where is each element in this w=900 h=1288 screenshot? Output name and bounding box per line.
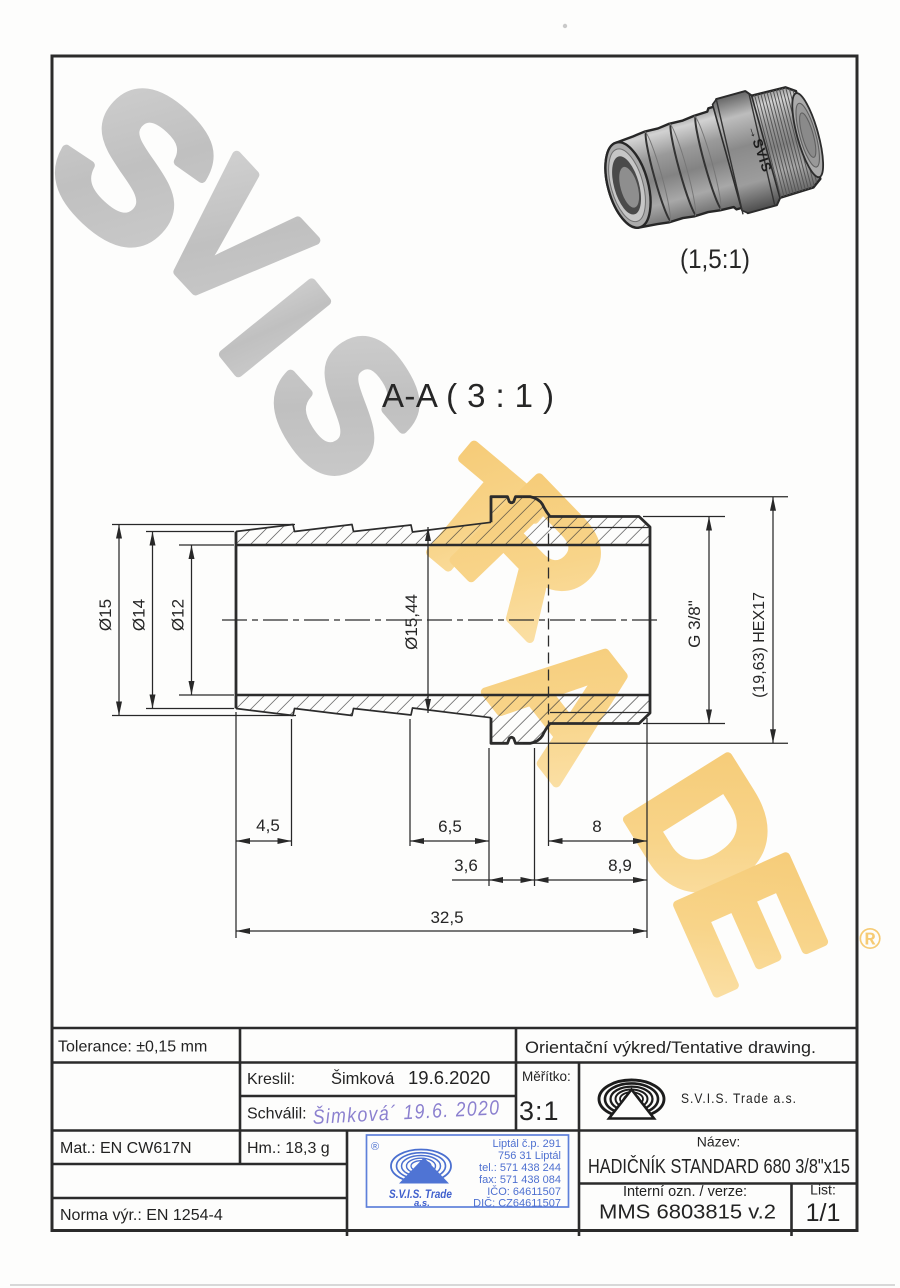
svg-text:Kreslil:: Kreslil: — [247, 1071, 295, 1088]
svg-text:3,6: 3,6 — [454, 856, 478, 875]
svg-text:6,5: 6,5 — [438, 817, 462, 836]
svg-text:Ø12: Ø12 — [169, 599, 188, 631]
svg-text:IČO: 64611507: IČO: 64611507 — [487, 1185, 561, 1198]
svg-text:®: ® — [371, 1141, 379, 1153]
svg-text:tel.: 571 438 244: tel.: 571 438 244 — [479, 1162, 561, 1174]
svg-text:(1,5:1): (1,5:1) — [680, 244, 750, 274]
svg-text:Norma výr.: EN 1254-4: Norma výr.: EN 1254-4 — [60, 1207, 223, 1224]
svg-text:®: ® — [859, 923, 881, 956]
svg-text:Tolerance: ±0,15 mm: Tolerance: ±0,15 mm — [58, 1039, 207, 1056]
svg-text:1/1: 1/1 — [806, 1199, 841, 1227]
svg-text:Mat.: EN CW617N: Mat.: EN CW617N — [60, 1140, 192, 1157]
svg-text:(19,63) HEX17: (19,63) HEX17 — [751, 592, 768, 698]
svg-text:Ø14: Ø14 — [130, 599, 149, 631]
svg-text:A-A ( 3 : 1 ): A-A ( 3 : 1 ) — [382, 377, 554, 414]
svg-text:Schválil:: Schválil: — [247, 1106, 307, 1123]
svg-text:fax: 571 438 084: fax: 571 438 084 — [479, 1174, 561, 1186]
svg-text:HADIČNÍK STANDARD 680 3/8"x15: HADIČNÍK STANDARD 680 3/8"x15 — [588, 1155, 850, 1178]
svg-text:List:: List: — [810, 1182, 836, 1198]
svg-text:Orientační výkred/Tentative dr: Orientační výkred/Tentative drawing. — [525, 1039, 816, 1057]
svg-text:4,5: 4,5 — [256, 816, 280, 835]
svg-text:Liptál č.p. 291: Liptál č.p. 291 — [493, 1138, 562, 1150]
svg-text:32,5: 32,5 — [430, 908, 463, 927]
svg-text:DIČ: CZ64611507: DIČ: CZ64611507 — [473, 1197, 561, 1210]
svg-text:Ø15: Ø15 — [96, 599, 115, 631]
svg-text:Název:: Název: — [697, 1134, 741, 1150]
svg-text:a.s.: a.s. — [414, 1198, 430, 1209]
svg-text:756 31 Liptál: 756 31 Liptál — [498, 1150, 561, 1162]
svg-text:Šimková: Šimková — [331, 1069, 395, 1088]
svg-text:G 3/8": G 3/8" — [685, 600, 704, 648]
svg-text:Ø15,44: Ø15,44 — [402, 594, 421, 650]
svg-text:3:1: 3:1 — [519, 1096, 560, 1126]
svg-text:Hm.: 18,3 g: Hm.: 18,3 g — [247, 1140, 330, 1157]
svg-text:8,9: 8,9 — [608, 856, 632, 875]
svg-text:S.V.I.S. Trade a.s.: S.V.I.S. Trade a.s. — [681, 1090, 797, 1106]
svg-text:MMS 6803815 v.2: MMS 6803815 v.2 — [599, 1201, 776, 1224]
svg-text:8: 8 — [592, 817, 601, 836]
svg-text:Interní ozn. / verze:: Interní ozn. / verze: — [623, 1184, 747, 1200]
svg-text:Měřítko:: Měřítko: — [522, 1069, 571, 1084]
svg-text:19.6.2020: 19.6.2020 — [408, 1067, 490, 1088]
